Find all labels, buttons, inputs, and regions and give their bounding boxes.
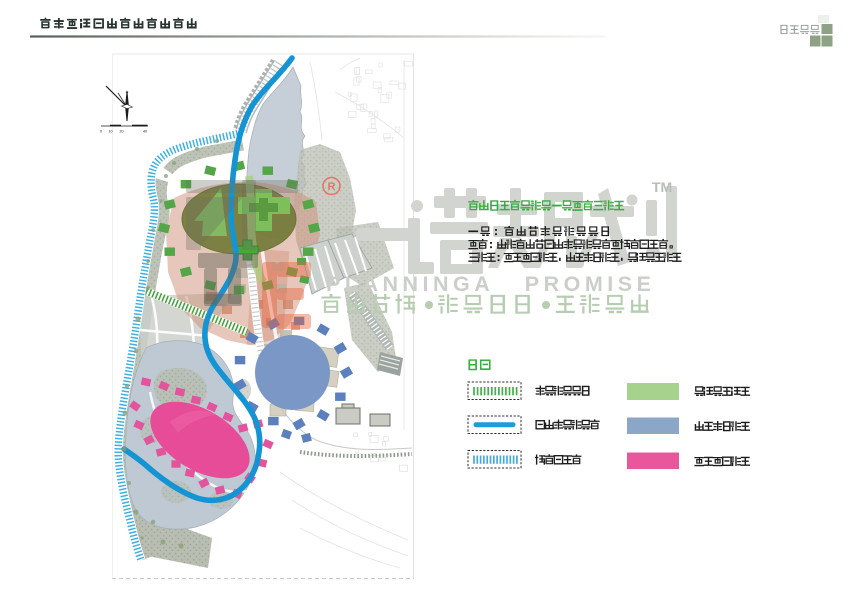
svg-text:20: 20 <box>120 130 124 134</box>
svg-text:R: R <box>328 181 336 193</box>
svg-text:PLANNINGA PROMISE: PLANNINGA PROMISE <box>326 272 655 296</box>
svg-text:0: 0 <box>100 130 102 134</box>
svg-text:TM: TM <box>652 179 672 195</box>
svg-text:10: 10 <box>109 130 113 134</box>
svg-text:40: 40 <box>143 130 147 134</box>
